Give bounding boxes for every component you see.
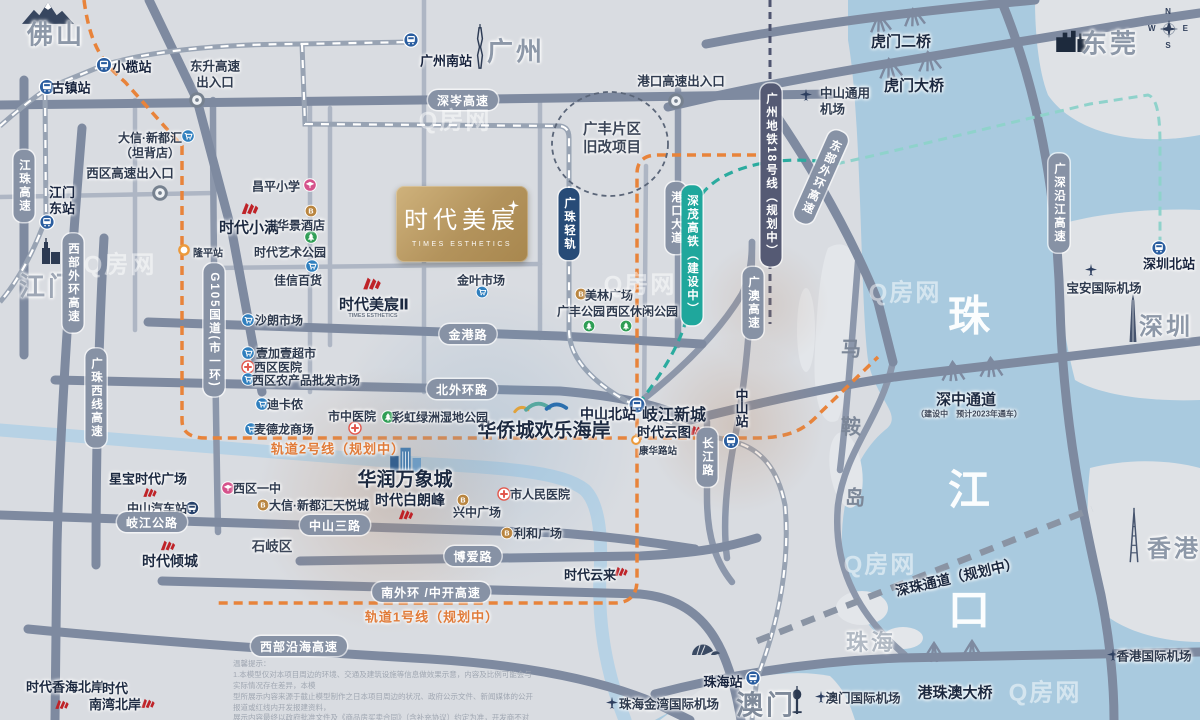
shop-icon xyxy=(181,129,195,143)
canton-tower-icon xyxy=(475,24,486,70)
rd-shencen-pill: 深岑高速 xyxy=(428,90,498,110)
st-shenzhenbei-label: 深圳北站 xyxy=(1143,254,1195,273)
plane-icon xyxy=(799,88,814,103)
shop-icon xyxy=(241,346,255,360)
rd-boai-pill: 博爱路 xyxy=(444,546,501,566)
poi-shizhonghosp-label: 市中医院 xyxy=(328,408,376,425)
vp-gzmetro18-pill: 广州地铁18号线（规划中） xyxy=(761,83,782,266)
compass-s: S xyxy=(1148,42,1188,50)
br-shenzhong-label: 深中通道 xyxy=(936,389,996,410)
guangzhou-label: 广州 xyxy=(487,32,545,69)
rd-beiwaihuan-pill: 北外环路 xyxy=(427,379,497,399)
poi-renminhosp-label: 市人民医院 xyxy=(510,486,570,503)
times-logo-icon xyxy=(241,200,260,216)
br-hzm-label: 港珠澳大桥 xyxy=(917,682,992,703)
poi-maidelong-label: 麦德龙商场 xyxy=(254,421,314,438)
ic-xiqu-label: 西区高速出入口 xyxy=(86,163,174,182)
map-canvas[interactable]: 时代美宸 TIMES ESTHETICS N W E S 温馨提示： 1.本模型… xyxy=(0,0,1200,720)
rd-nanwaihuan-pill: 南外环 /中开高速 xyxy=(372,582,490,602)
pj-xiaoman-label: 时代小满 xyxy=(219,217,279,238)
vp-xibuwaihuan-pill: 西部外环高速 xyxy=(63,234,84,333)
disclaimer-block: 温馨提示： 1.本模型仅对本项目周边的环境、交通及建筑设施等信息做效果示意，内容… xyxy=(233,659,533,720)
ap-zhongshan-label: 中山通用 机场 xyxy=(820,86,870,117)
lm-maan-char: 岛 xyxy=(845,482,865,511)
svg-text:B: B xyxy=(260,502,265,510)
poi-jiaxin-label: 佳信百货 xyxy=(274,272,322,289)
ap-jinwan-label: 珠海金湾国际机场 xyxy=(619,694,719,713)
poi-jinye-label: 金叶市场 xyxy=(457,272,505,289)
st-zhuhai-label: 珠海站 xyxy=(703,672,742,691)
lm-zhujiangkou-char: 珠 xyxy=(948,283,990,344)
lm-guangfeng-label: 广丰片区 旧改项目 xyxy=(583,121,641,157)
rd-xibuyanhai-pill: 西部沿海高速 xyxy=(251,636,347,656)
stop-icon xyxy=(178,244,191,257)
st-xiaolan-label: 小榄站 xyxy=(112,57,151,76)
ap-baoan-label: 宝安国际机场 xyxy=(1066,278,1141,297)
disclaimer-line: 展示内容最终以政府批准文件及《商品房买卖合同》（含补充协议）约定为准，开发商不对… xyxy=(233,713,533,720)
svg-text:B: B xyxy=(308,208,313,216)
building-icon xyxy=(38,238,64,264)
lm-maan-char: 鞍 xyxy=(841,411,861,440)
ap-hk-label: 香港国际机场 xyxy=(1116,646,1191,665)
compass-rose: N W E S xyxy=(1148,8,1188,50)
poi-caihong-label: 彩虹绿洲湿地公园 xyxy=(392,409,488,426)
hospital-icon xyxy=(497,487,511,501)
plane-icon xyxy=(605,696,620,711)
ic-gangkou-label: 港口高速出入口 xyxy=(637,71,725,90)
ml-line1-label: 轨道1号线（规划中） xyxy=(365,607,499,626)
pj-xingbao-label: 星宝时代广场 xyxy=(109,469,187,488)
lm-hrc-label: 华润万象城 xyxy=(357,465,452,492)
br-humen1-label: 虎门大桥 xyxy=(884,75,944,96)
interchange-icon xyxy=(152,185,169,202)
poi-xingzhong-label: 兴中广场 xyxy=(453,504,501,521)
br-humen2-label: 虎门二桥 xyxy=(871,31,931,52)
poi-meilin-label: 美林广场 xyxy=(585,287,633,304)
park-icon xyxy=(583,320,596,333)
main-project-subtitle: TIMES ESTHETICS xyxy=(412,241,512,248)
compass-w: W xyxy=(1148,25,1156,33)
rd-jingang-pill: 金港路 xyxy=(439,324,496,344)
park-icon xyxy=(620,320,633,333)
svg-text:B: B xyxy=(504,530,509,538)
vp-guangao-pill: 广澳高速 xyxy=(743,267,764,339)
compass-star-icon xyxy=(1156,16,1182,42)
times-logo-icon xyxy=(141,697,156,710)
lm-qijiangxincheng-label: 岐江新城 xyxy=(642,401,706,425)
poi-lihe-label: 利和广场 xyxy=(514,525,562,542)
lm-zhujiangkou-char: 江 xyxy=(948,457,990,518)
main-project-name: 时代美宸 xyxy=(404,200,520,235)
main-project-plaque: 时代美宸 TIMES ESTHETICS xyxy=(396,186,528,262)
pj-nanwan-label: 时代 南湾北岸 xyxy=(89,681,141,714)
lm-occt-label: 华侨城欢乐海岸 xyxy=(477,416,610,443)
ap-macau-label: 澳门国际机场 xyxy=(825,688,900,707)
st-longping-label: 隆平站 xyxy=(193,245,223,260)
st-gzsouth-label: 广州南站 xyxy=(420,51,472,70)
st-zhongshan-label: 中山站 xyxy=(732,389,751,428)
swoosh-icon xyxy=(512,398,570,417)
vp-jiangzhu-pill: 江珠高速 xyxy=(14,150,35,222)
poi-changping-label: 昌平小学 xyxy=(252,178,300,195)
ml-line2-label: 轨道2号线（规划中） xyxy=(271,439,405,458)
disclaimer-line: 1.本模型仅对本项目周边的环境、交通及建筑设施等信息做效果示意，内容及比例可能会… xyxy=(233,670,533,692)
vp-g105-pill: G105国道(市一环) xyxy=(204,263,225,396)
pj-meichen2-sub-label: TIMES ESTHETICS xyxy=(348,313,397,319)
map-base-layer xyxy=(0,0,1200,720)
rd-zhongshansan-pill: 中山三路 xyxy=(300,515,370,535)
vp-changjiang-pill: 长江路 xyxy=(697,428,718,487)
interchange-icon xyxy=(668,93,685,110)
st-jiangmendong-label: 江门 东站 xyxy=(49,185,75,218)
lm-shiqi-label: 石岐区 xyxy=(252,535,293,555)
vp-guangzhuqinggui-pill: 广珠轻轨 xyxy=(559,188,580,260)
interchange-icon xyxy=(189,92,206,109)
times-logo-icon xyxy=(55,698,70,711)
pj-meichen2-label: 时代美宸Ⅱ xyxy=(339,294,409,315)
pj-qingcheng-label: 时代倾城 xyxy=(142,551,198,571)
poi-daxin-tanbei-label: 大信·新都汇 （坦背店） xyxy=(118,131,182,161)
pj-bailangfeng-label: 时代白朗峰 xyxy=(375,490,445,510)
train-icon xyxy=(723,433,740,450)
br-shenzhong-sub-label: （建设中 预计2023年通车） xyxy=(916,409,1022,420)
shenzhen-label: 深圳 xyxy=(1139,307,1193,342)
compass-e: E xyxy=(1183,25,1188,33)
shop-icon xyxy=(241,313,255,327)
times-logo-icon xyxy=(362,275,382,292)
vp-shenmao-pill: 深茂高铁（建设中） xyxy=(682,185,703,325)
poi-xiquyizhong-label: 西区一中 xyxy=(233,480,281,497)
rd-qijiang-pill: 岐江公路 xyxy=(117,512,187,532)
lattice-tower-icon xyxy=(1127,508,1142,563)
zhuhai-city-label: 珠海 xyxy=(846,625,896,657)
vp-guangzhuxi-pill: 广珠西线高速 xyxy=(86,349,107,448)
shell-theatre-icon xyxy=(690,639,722,657)
hongkong-label: 香港 xyxy=(1147,529,1200,564)
st-guzhen-label: 古镇站 xyxy=(51,78,90,97)
poi-xiquleisure-label: 西区休闲公园 xyxy=(606,303,678,320)
vp-gsyj-pill: 广深沿江高速 xyxy=(1049,154,1070,253)
poi-nongpi-label: 西区农产品批发市场 xyxy=(252,372,360,389)
poi-guangfengpark-label: 广丰公园 xyxy=(557,303,605,320)
times-logo-icon xyxy=(160,538,176,552)
school-icon xyxy=(303,178,317,192)
poi-artpark-label: 时代艺术公园 xyxy=(254,244,326,261)
ic-dongsheng-label: 东升高速 出入口 xyxy=(190,59,240,90)
sparkle-icon xyxy=(508,198,519,216)
train-icon xyxy=(96,57,113,74)
poi-huajing-label: 华景酒店 xyxy=(277,217,325,234)
skyscraper-icon xyxy=(1127,294,1139,342)
compass-n: N xyxy=(1148,8,1188,16)
pj-yunlai-label: 时代云来 xyxy=(564,565,616,584)
disclaimer-title: 温馨提示： xyxy=(233,659,533,670)
lm-maan-char: 马 xyxy=(841,333,861,362)
train-icon xyxy=(403,32,419,48)
poi-daxintianyue-label: 大信·新都汇天悦城 xyxy=(269,497,369,514)
poi-shalang-label: 沙朗市场 xyxy=(255,312,303,329)
plane-icon xyxy=(1084,263,1099,278)
st-kanghualu-label: 康华路站 xyxy=(639,443,677,457)
mall-icon: B xyxy=(501,527,514,540)
poi-dikanon-label: 迪卡侬 xyxy=(267,396,303,413)
svg-text:B: B xyxy=(578,291,583,299)
foshan-label: 佛山 xyxy=(27,15,85,52)
mall-icon: B xyxy=(257,499,270,512)
disclaimer-line: 型所展示内容来源于截止模型制作之日本项目周边的状况、政府公示文件、新闻媒体的公开… xyxy=(233,692,533,714)
macau-label: 澳门 xyxy=(736,684,796,720)
dongguan-label: 东莞 xyxy=(1081,24,1139,61)
